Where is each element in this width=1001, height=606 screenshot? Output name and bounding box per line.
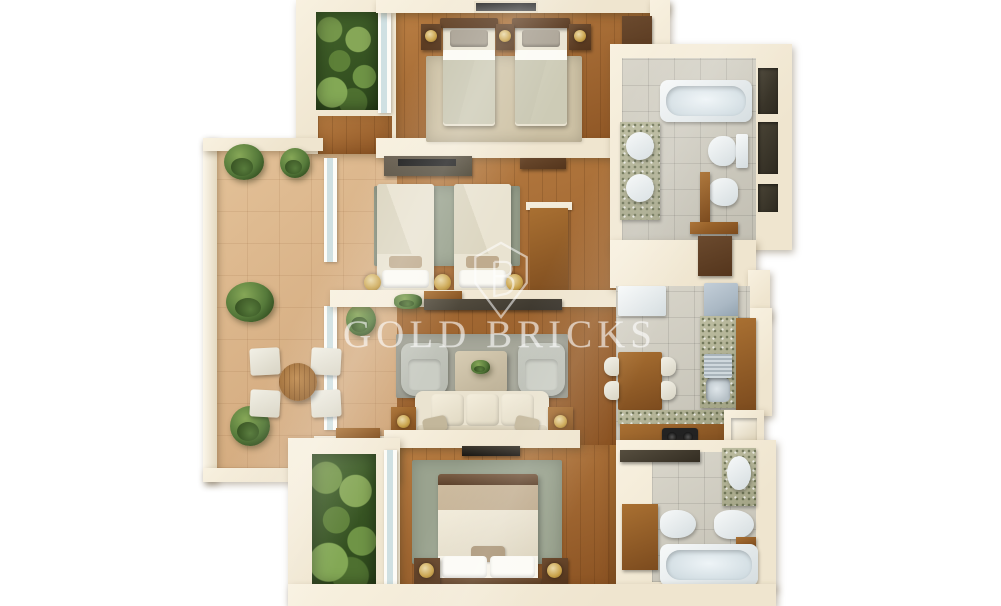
bathtub-basin <box>666 86 746 116</box>
door-bathroom-top <box>700 172 710 222</box>
table-lamp <box>574 30 586 42</box>
pillow <box>490 556 535 578</box>
wall-niche <box>758 68 778 114</box>
headboard <box>440 18 498 28</box>
tv-mid-bedroom <box>398 159 456 166</box>
dining-chair <box>661 381 676 400</box>
floor-plan-render: GOLD BRICKS <box>0 0 1001 606</box>
kitchen-wall-niche <box>731 418 757 442</box>
bed-foot-fold <box>438 474 538 485</box>
coffee-table-plant <box>471 360 490 374</box>
cabinet-bathroom-bottom <box>622 504 658 570</box>
table-lamp <box>397 415 410 428</box>
planter-top-greenery <box>316 12 378 110</box>
dining-table <box>618 352 662 410</box>
watermark-brand-text: GOLD BRICKS <box>200 312 800 358</box>
bed-tan-band <box>438 485 538 510</box>
window-bedroom-top-left <box>378 13 391 113</box>
blanket <box>515 60 567 124</box>
pillow <box>450 30 488 47</box>
potted-plant <box>224 144 264 180</box>
table-lamp <box>419 563 434 578</box>
dining-chair <box>661 357 676 376</box>
armchair-cushion <box>525 359 558 390</box>
shelf-plant <box>394 294 422 309</box>
headboard <box>512 18 570 28</box>
bathtub-bottom <box>660 544 758 586</box>
bathtub-top <box>660 80 752 122</box>
round-sink-2 <box>626 174 654 202</box>
tv-master-bedroom <box>462 446 520 456</box>
double-bed <box>438 474 538 590</box>
shelf-mid-bedroom <box>520 158 566 169</box>
twin-bed-3 <box>377 184 434 292</box>
sheet-fold <box>443 50 495 60</box>
tall-cabinet-kitchen <box>698 236 732 276</box>
toilet-bottom-bath <box>714 510 754 539</box>
twin-bed-1 <box>443 22 495 126</box>
toilet-top-bath <box>708 136 736 166</box>
table-lamp <box>547 563 562 578</box>
terrace-chair <box>310 389 341 418</box>
wall-niche <box>758 184 778 212</box>
terrace-round-table <box>279 363 317 401</box>
accent-pillow <box>389 256 422 268</box>
table-lamp <box>425 30 437 42</box>
armchair-cushion <box>408 359 441 390</box>
blanket-fold <box>377 184 434 254</box>
oval-sink-bottom-bath <box>727 456 751 490</box>
blanket <box>443 60 495 124</box>
sheet-fold <box>515 50 567 60</box>
desk-mid-bedroom <box>530 208 568 296</box>
bidet-top-bath <box>708 178 738 206</box>
bidet-bottom-bath <box>660 510 696 538</box>
dining-chair <box>604 357 619 376</box>
terrace-wall-top <box>203 138 323 151</box>
wall-bottom <box>288 584 776 606</box>
terrace-railing-left <box>203 138 217 482</box>
pillow <box>442 556 487 578</box>
potted-plant <box>280 148 310 178</box>
shelf-bathroom-bottom <box>620 450 700 462</box>
kitchen-sink-basin <box>706 378 730 402</box>
table-lamp <box>434 274 451 291</box>
twin-bed-2 <box>515 22 567 126</box>
bathtub-basin <box>666 550 752 580</box>
pillow <box>522 30 560 47</box>
toilet-tank <box>736 134 748 168</box>
round-sink-1 <box>626 132 654 160</box>
kitchen-counter-bottom-granite <box>618 410 726 424</box>
table-lamp <box>364 274 381 291</box>
shield-b-monogram-icon <box>470 240 532 320</box>
sofa-cushion <box>466 394 499 426</box>
pillow <box>382 270 429 288</box>
table-lamp <box>499 30 511 42</box>
door-threshold-top-bath <box>690 222 738 234</box>
wall-kitchen-top <box>610 240 756 288</box>
window-top-slot <box>476 3 536 11</box>
dining-chair <box>604 381 619 400</box>
window-master-left <box>384 450 397 590</box>
wall-niche <box>758 122 778 174</box>
terrace-chair <box>249 389 280 418</box>
window-terrace-bedroom <box>324 158 337 262</box>
table-lamp <box>554 415 567 428</box>
planter-bottom-greenery <box>312 454 376 586</box>
